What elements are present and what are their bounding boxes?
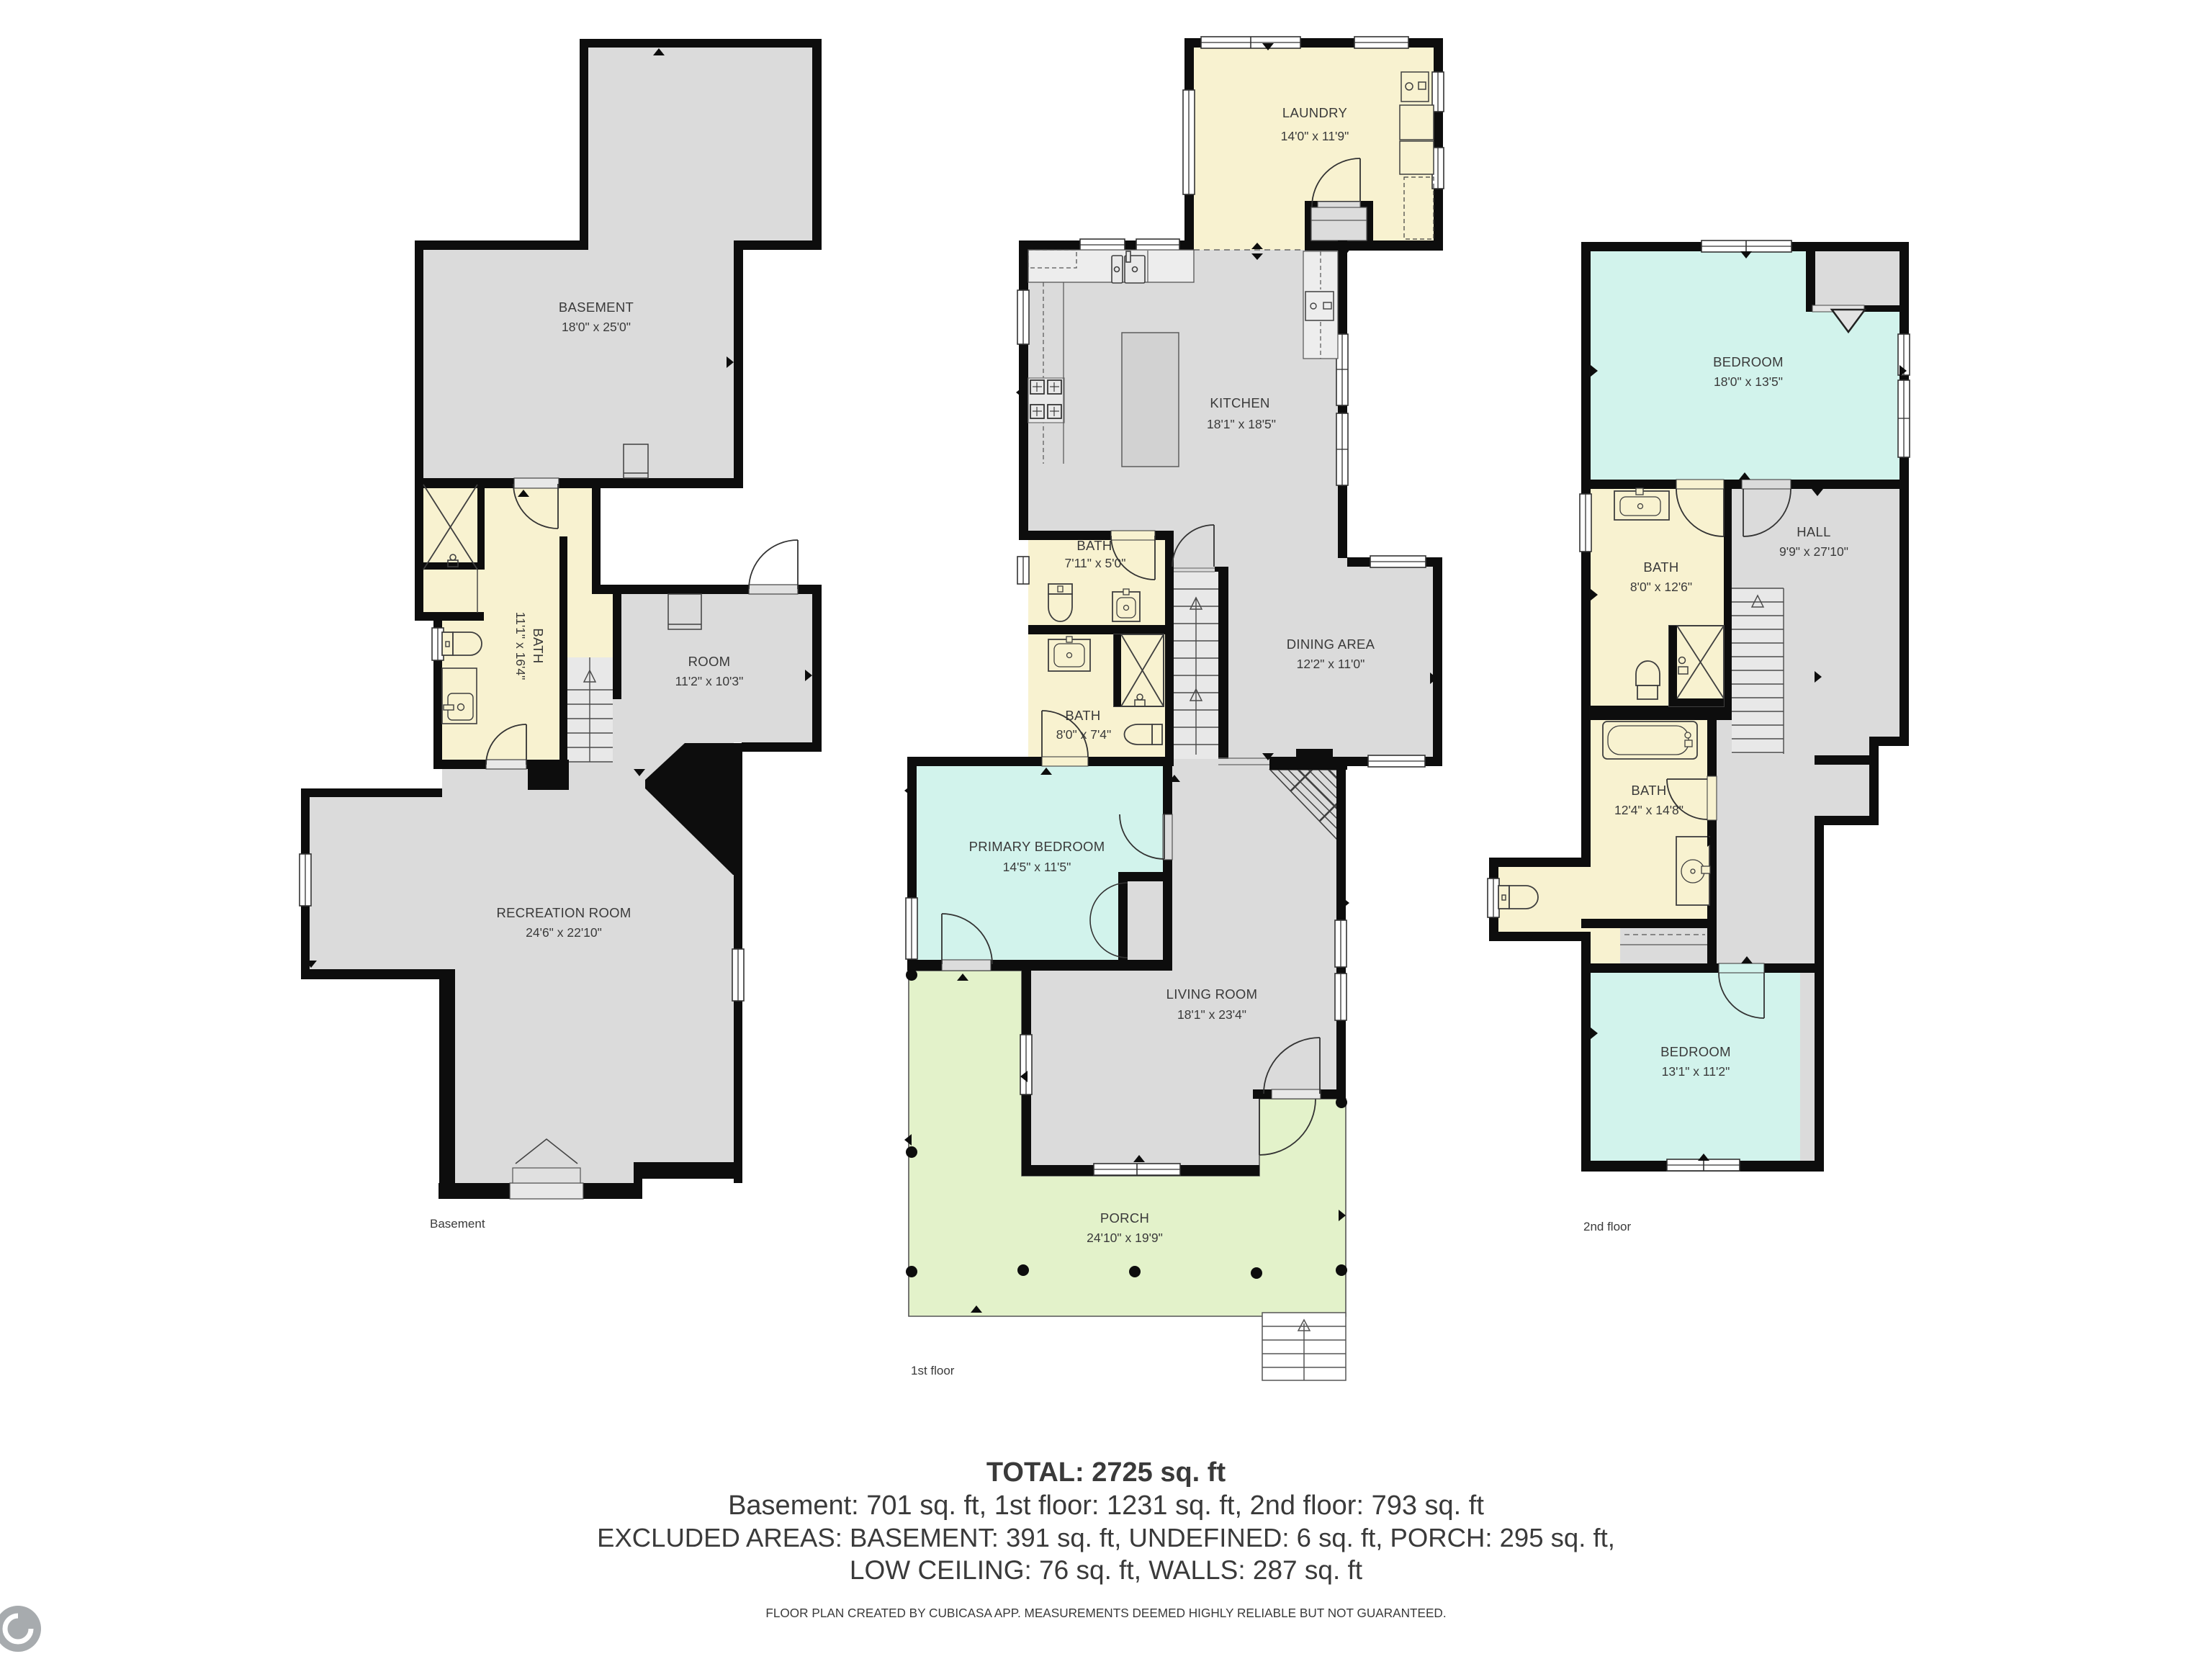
- svg-text:8'0" x 7'4": 8'0" x 7'4": [1056, 727, 1112, 742]
- svg-text:BATH: BATH: [1643, 559, 1678, 575]
- svg-text:Basement: 701 sq. ft, 1st floo: Basement: 701 sq. ft, 1st floor: 1231 sq…: [728, 1491, 1484, 1521]
- svg-text:11'2" x 10'3": 11'2" x 10'3": [675, 674, 744, 688]
- svg-text:BATH: BATH: [1076, 538, 1112, 553]
- svg-text:18'0" x 13'5": 18'0" x 13'5": [1714, 374, 1783, 389]
- svg-text:PORCH: PORCH: [1100, 1210, 1149, 1226]
- svg-text:FLOOR PLAN CREATED BY CUBICASA: FLOOR PLAN CREATED BY CUBICASA APP. MEAS…: [765, 1606, 1446, 1620]
- svg-text:KITCHEN: KITCHEN: [1210, 395, 1269, 410]
- svg-text:12'2" x 11'0": 12'2" x 11'0": [1297, 657, 1365, 671]
- svg-text:18'1" x 23'4": 18'1" x 23'4": [1177, 1007, 1246, 1022]
- svg-text:14'0" x 11'9": 14'0" x 11'9": [1281, 129, 1349, 143]
- svg-text:24'6" x 22'10": 24'6" x 22'10": [526, 925, 602, 940]
- svg-text:24'10" x 19'9": 24'10" x 19'9": [1087, 1231, 1163, 1245]
- svg-text:7'11" x 5'0": 7'11" x 5'0": [1065, 556, 1126, 570]
- svg-text:BATH: BATH: [1065, 708, 1100, 723]
- svg-text:12'4" x 14'8": 12'4" x 14'8": [1614, 803, 1683, 817]
- svg-text:14'5" x 11'5": 14'5" x 11'5": [1003, 860, 1071, 874]
- svg-text:BEDROOM: BEDROOM: [1713, 354, 1784, 369]
- svg-text:9'9" x 27'10": 9'9" x 27'10": [1779, 544, 1848, 559]
- svg-text:2nd floor: 2nd floor: [1583, 1220, 1631, 1233]
- svg-text:LAUNDRY: LAUNDRY: [1282, 105, 1347, 120]
- svg-text:PRIMARY BEDROOM: PRIMARY BEDROOM: [969, 839, 1105, 854]
- svg-text:BASEMENT: BASEMENT: [559, 300, 634, 315]
- svg-text:13'1" x 11'2": 13'1" x 11'2": [1662, 1064, 1730, 1079]
- svg-text:EXCLUDED AREAS: BASEMENT: 391: EXCLUDED AREAS: BASEMENT: 391 sq. ft, UN…: [597, 1523, 1615, 1552]
- svg-text:Basement: Basement: [430, 1217, 485, 1231]
- svg-text:DINING AREA: DINING AREA: [1287, 637, 1375, 652]
- svg-text:RECREATION ROOM: RECREATION ROOM: [496, 905, 631, 920]
- svg-text:18'0" x 25'0": 18'0" x 25'0": [562, 320, 631, 334]
- svg-text:8'0" x 12'6": 8'0" x 12'6": [1630, 580, 1692, 594]
- svg-text:TOTAL: 2725 sq. ft: TOTAL: 2725 sq. ft: [986, 1457, 1226, 1488]
- svg-text:1st floor: 1st floor: [911, 1364, 955, 1377]
- svg-text:BEDROOM: BEDROOM: [1660, 1044, 1731, 1059]
- svg-text:11'1" x 16'4": 11'1" x 16'4": [513, 612, 528, 680]
- svg-text:BATH: BATH: [531, 628, 546, 663]
- svg-text:ROOM: ROOM: [688, 654, 731, 669]
- svg-text:LOW CEILING: 76 sq. ft, WALLS:: LOW CEILING: 76 sq. ft, WALLS: 287 sq. f…: [850, 1555, 1363, 1585]
- svg-text:BATH: BATH: [1631, 783, 1666, 798]
- svg-text:18'1" x 18'5": 18'1" x 18'5": [1207, 417, 1276, 431]
- svg-text:LIVING ROOM: LIVING ROOM: [1166, 986, 1258, 1002]
- svg-text:HALL: HALL: [1797, 524, 1830, 539]
